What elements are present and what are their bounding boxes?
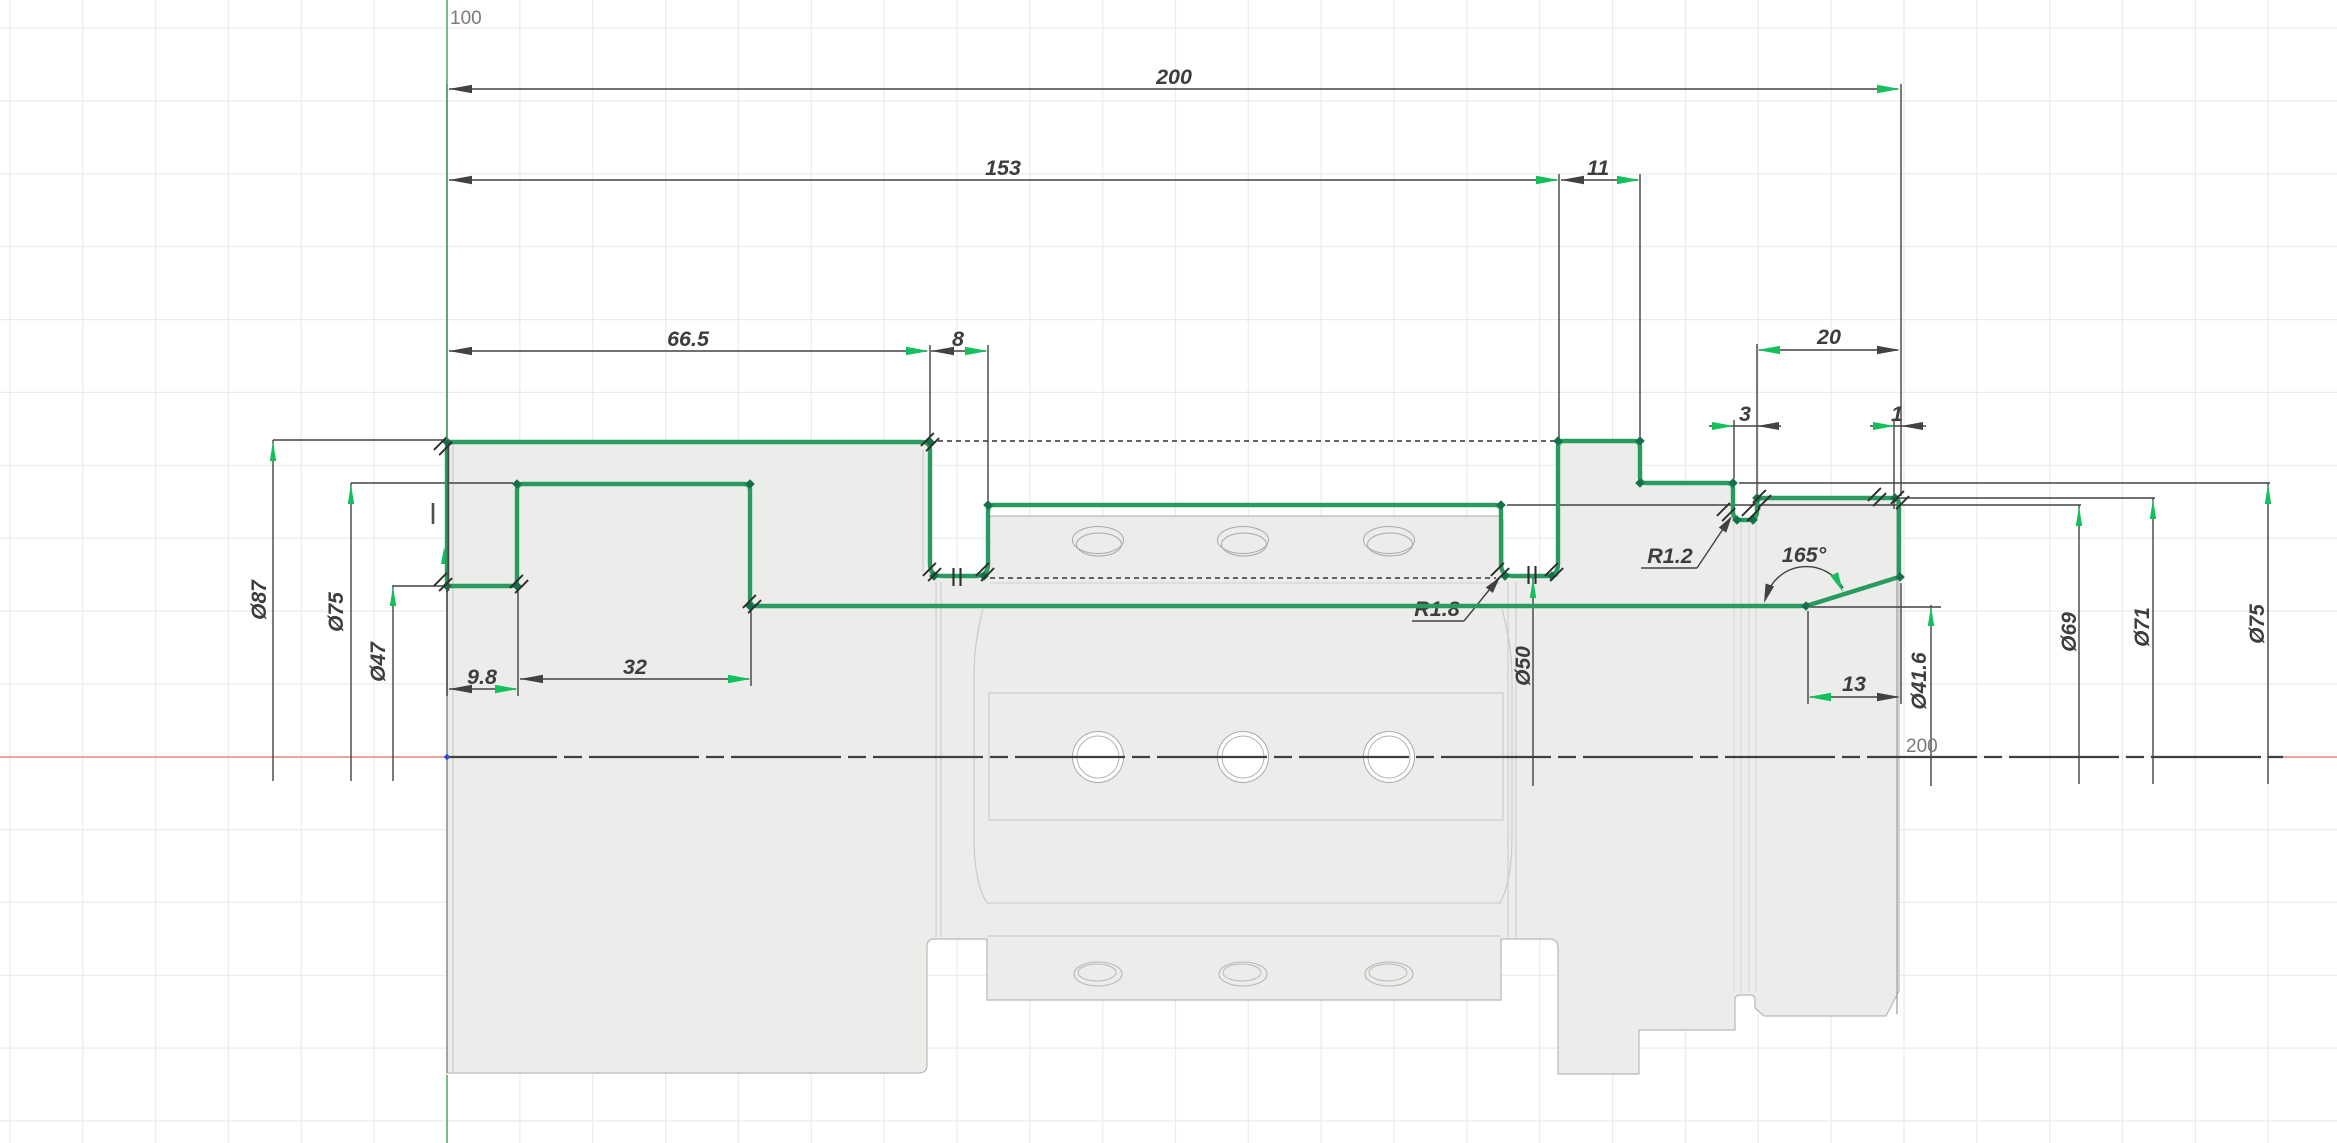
svg-text:20: 20 — [1816, 325, 1841, 349]
svg-text:13: 13 — [1842, 672, 1866, 696]
svg-text:Ø71: Ø71 — [2131, 607, 2154, 647]
svg-text:8: 8 — [952, 327, 964, 351]
svg-text:100: 100 — [450, 8, 482, 29]
svg-text:165°: 165° — [1782, 543, 1827, 567]
svg-text:32: 32 — [623, 655, 647, 679]
svg-text:200: 200 — [1906, 736, 1938, 757]
svg-text:Ø50: Ø50 — [1512, 646, 1535, 686]
svg-text:Ø47: Ø47 — [367, 641, 390, 682]
svg-text:Ø75: Ø75 — [2246, 604, 2269, 644]
svg-text:3: 3 — [1739, 402, 1751, 426]
svg-text:9.8: 9.8 — [467, 665, 497, 689]
svg-text:R1.8: R1.8 — [1414, 597, 1459, 621]
svg-text:1: 1 — [1891, 402, 1903, 426]
svg-text:Ø75: Ø75 — [325, 592, 348, 632]
svg-text:Ø41.6: Ø41.6 — [1908, 652, 1931, 710]
svg-text:Ø87: Ø87 — [248, 579, 271, 620]
svg-text:R1.2: R1.2 — [1647, 544, 1692, 568]
svg-text:Ø69: Ø69 — [2058, 612, 2081, 652]
svg-text:200: 200 — [1155, 65, 1192, 89]
svg-text:153: 153 — [985, 156, 1021, 180]
svg-text:66.5: 66.5 — [667, 327, 710, 351]
svg-text:11: 11 — [1587, 156, 1609, 180]
